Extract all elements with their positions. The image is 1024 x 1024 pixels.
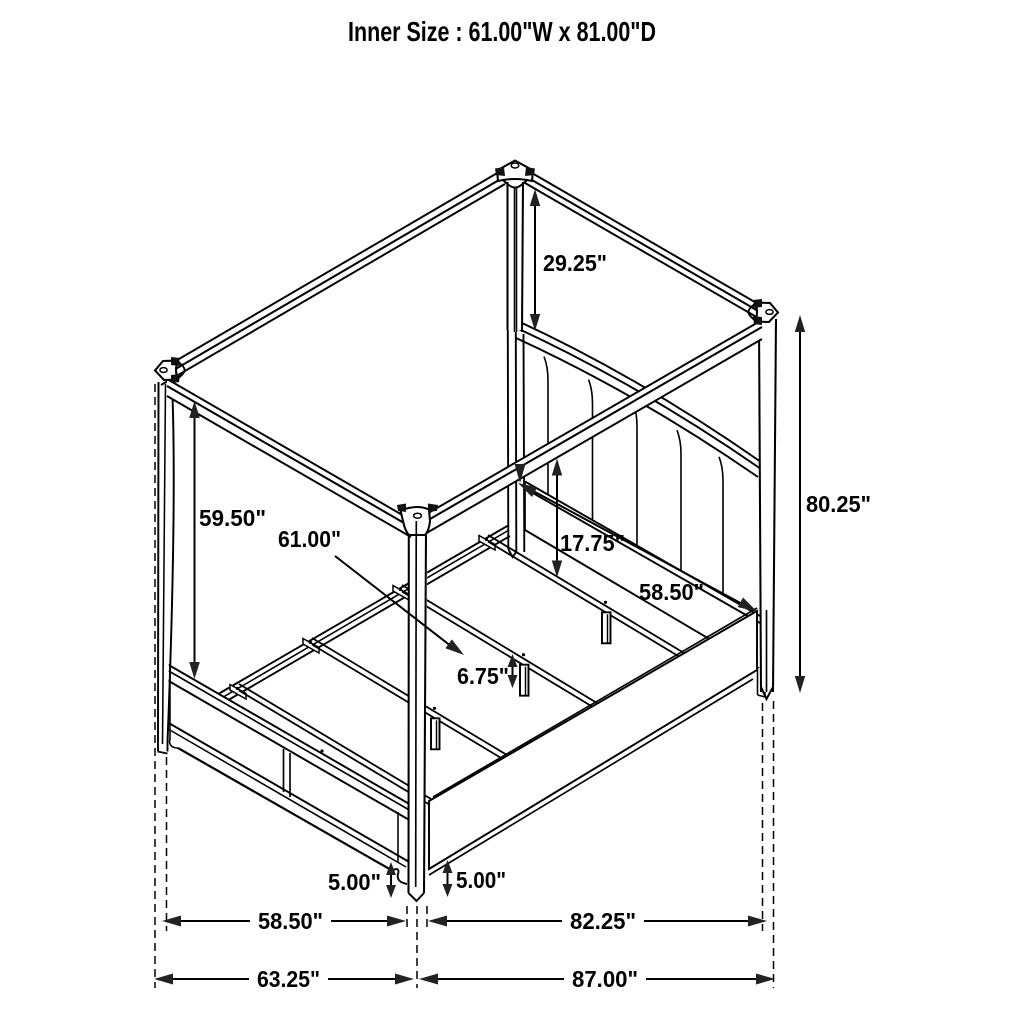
svg-text:59.50": 59.50" <box>199 505 266 531</box>
svg-text:5.00": 5.00" <box>328 869 381 895</box>
svg-text:17.75": 17.75" <box>560 530 625 556</box>
svg-text:5.00": 5.00" <box>456 867 506 893</box>
svg-text:87.00": 87.00" <box>572 966 638 992</box>
svg-text:58.50": 58.50" <box>258 908 323 934</box>
svg-text:63.25": 63.25" <box>257 966 320 992</box>
svg-text:61.00": 61.00" <box>278 526 341 552</box>
svg-text:58.50": 58.50" <box>639 579 704 605</box>
svg-text:29.25": 29.25" <box>543 250 607 276</box>
svg-text:80.25": 80.25" <box>806 491 871 517</box>
svg-text:Inner Size : 61.00"W x 81.00"D: Inner Size : 61.00"W x 81.00"D <box>348 16 656 47</box>
svg-text:6.75": 6.75" <box>457 663 509 689</box>
svg-text:82.25": 82.25" <box>570 908 636 934</box>
